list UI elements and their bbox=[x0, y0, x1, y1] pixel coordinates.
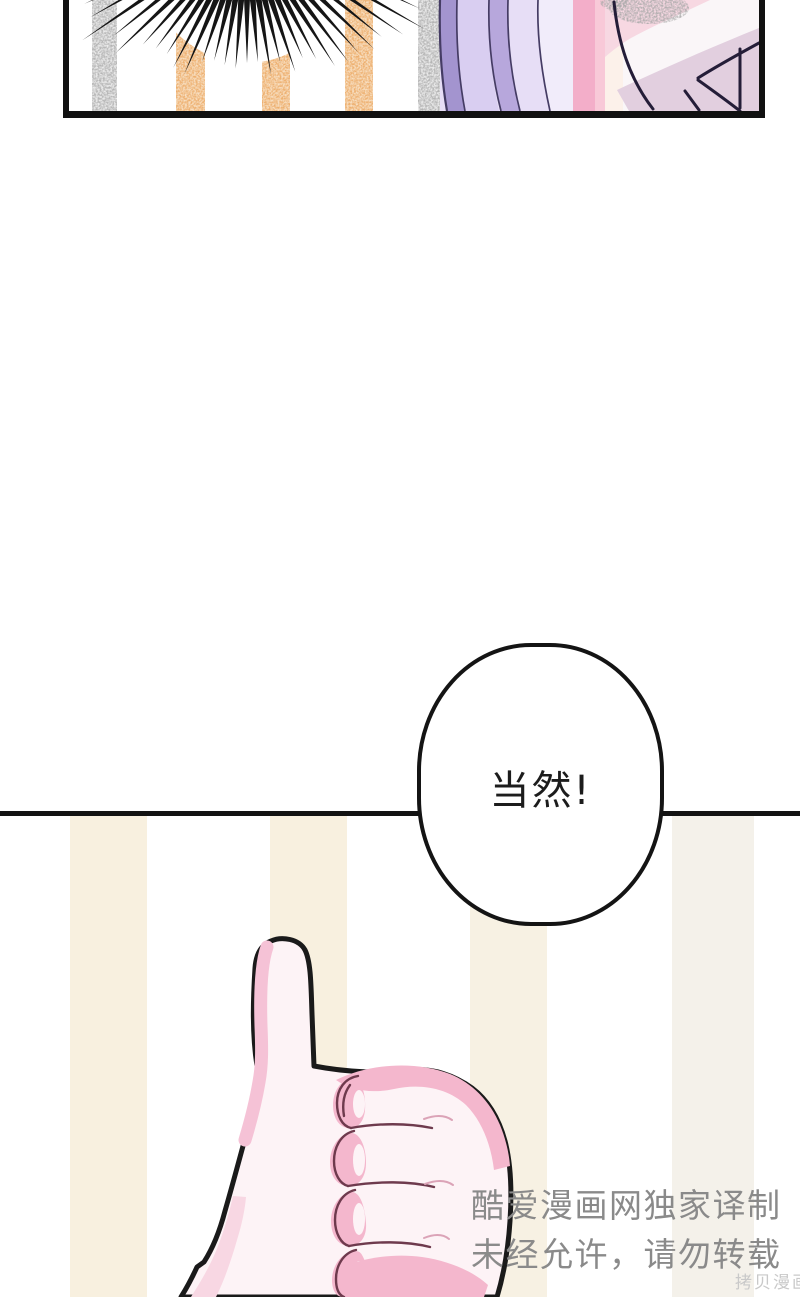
bg-stripe-gray bbox=[92, 0, 117, 111]
top-panel-art bbox=[69, 0, 759, 111]
translator-watermark: 酷爱漫画网独家译制 未经允许，请勿转载 bbox=[471, 1181, 782, 1279]
speech-bubble-text: 当然! bbox=[419, 768, 662, 814]
pink-band-art bbox=[573, 0, 605, 111]
site-watermark: 拷贝漫画 bbox=[735, 1268, 800, 1293]
pink-band-highlight bbox=[595, 0, 605, 111]
bg-stripe-orange bbox=[345, 0, 373, 111]
face-art bbox=[600, 0, 759, 111]
comic-page: 当然! 酷爱漫画网独家译制 未经允许，请勿转载 拷贝漫画 bbox=[0, 0, 800, 1297]
knuckle-highlight bbox=[353, 1144, 365, 1176]
top-panel bbox=[63, 0, 765, 118]
knuckle-highlight bbox=[353, 1203, 365, 1235]
knuckle-highlight bbox=[353, 1090, 365, 1118]
watermark-line-1: 酷爱漫画网独家译制 bbox=[471, 1181, 782, 1230]
hair-art bbox=[440, 0, 573, 111]
bg-stripe-gray bbox=[418, 0, 440, 111]
